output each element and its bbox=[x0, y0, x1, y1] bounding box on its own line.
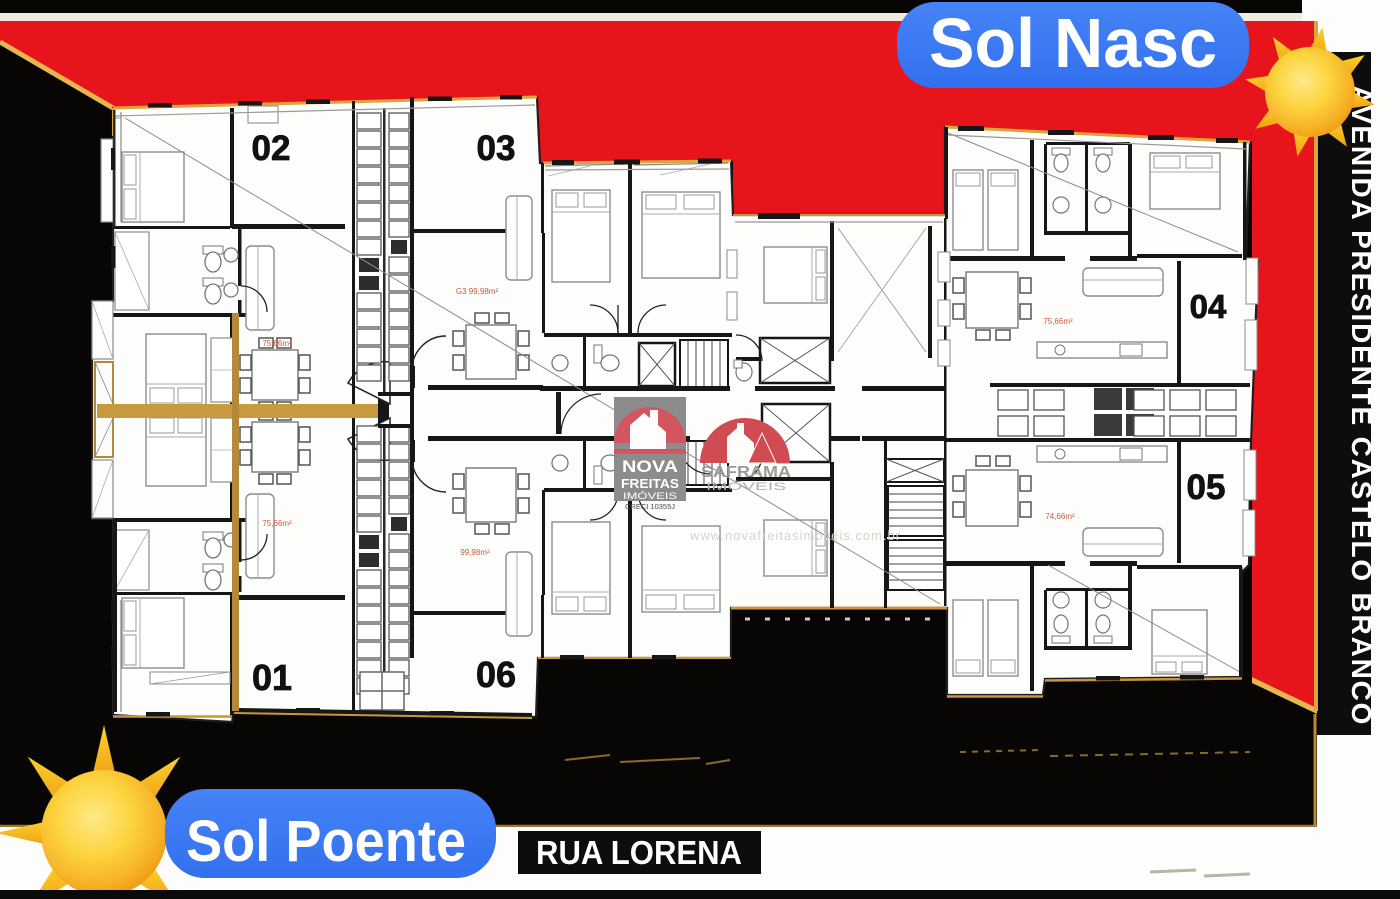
svg-text:NOVA: NOVA bbox=[622, 457, 678, 476]
svg-text:75,66m²: 75,66m² bbox=[1043, 317, 1073, 326]
svg-text:SAFRAMA: SAFRAMA bbox=[701, 464, 791, 481]
svg-text:75,66m²: 75,66m² bbox=[262, 519, 292, 528]
svg-text:Sol Poente: Sol Poente bbox=[186, 809, 466, 874]
svg-text:FREITAS: FREITAS bbox=[621, 476, 679, 491]
svg-text:03: 03 bbox=[477, 129, 516, 168]
svg-text:02: 02 bbox=[252, 129, 291, 168]
svg-text:04: 04 bbox=[1190, 288, 1227, 325]
svg-text:www.novafreitasimoveis.com.br: www.novafreitasimoveis.com.br bbox=[689, 528, 901, 543]
svg-text:Sol Nasc: Sol Nasc bbox=[929, 4, 1217, 82]
svg-text:IMÓVEIS: IMÓVEIS bbox=[623, 491, 677, 501]
svg-text:99,98m²: 99,98m² bbox=[460, 548, 490, 557]
svg-text:01: 01 bbox=[252, 657, 292, 698]
svg-text:IMÓVEIS: IMÓVEIS bbox=[706, 480, 786, 493]
svg-text:05: 05 bbox=[1187, 468, 1226, 507]
svg-text:G3 99,98m²: G3 99,98m² bbox=[456, 287, 499, 296]
svg-text:74,66m²: 74,66m² bbox=[1045, 512, 1075, 521]
svg-text:AVENIDA PRESIDENTE CASTELO BRA: AVENIDA PRESIDENTE CASTELO BRANCO bbox=[1346, 85, 1377, 726]
svg-text:CRECI 10355J: CRECI 10355J bbox=[625, 502, 675, 511]
svg-text:75,66m²: 75,66m² bbox=[262, 339, 292, 348]
svg-text:RUA LORENA: RUA LORENA bbox=[536, 834, 742, 871]
svg-text:06: 06 bbox=[476, 654, 516, 695]
